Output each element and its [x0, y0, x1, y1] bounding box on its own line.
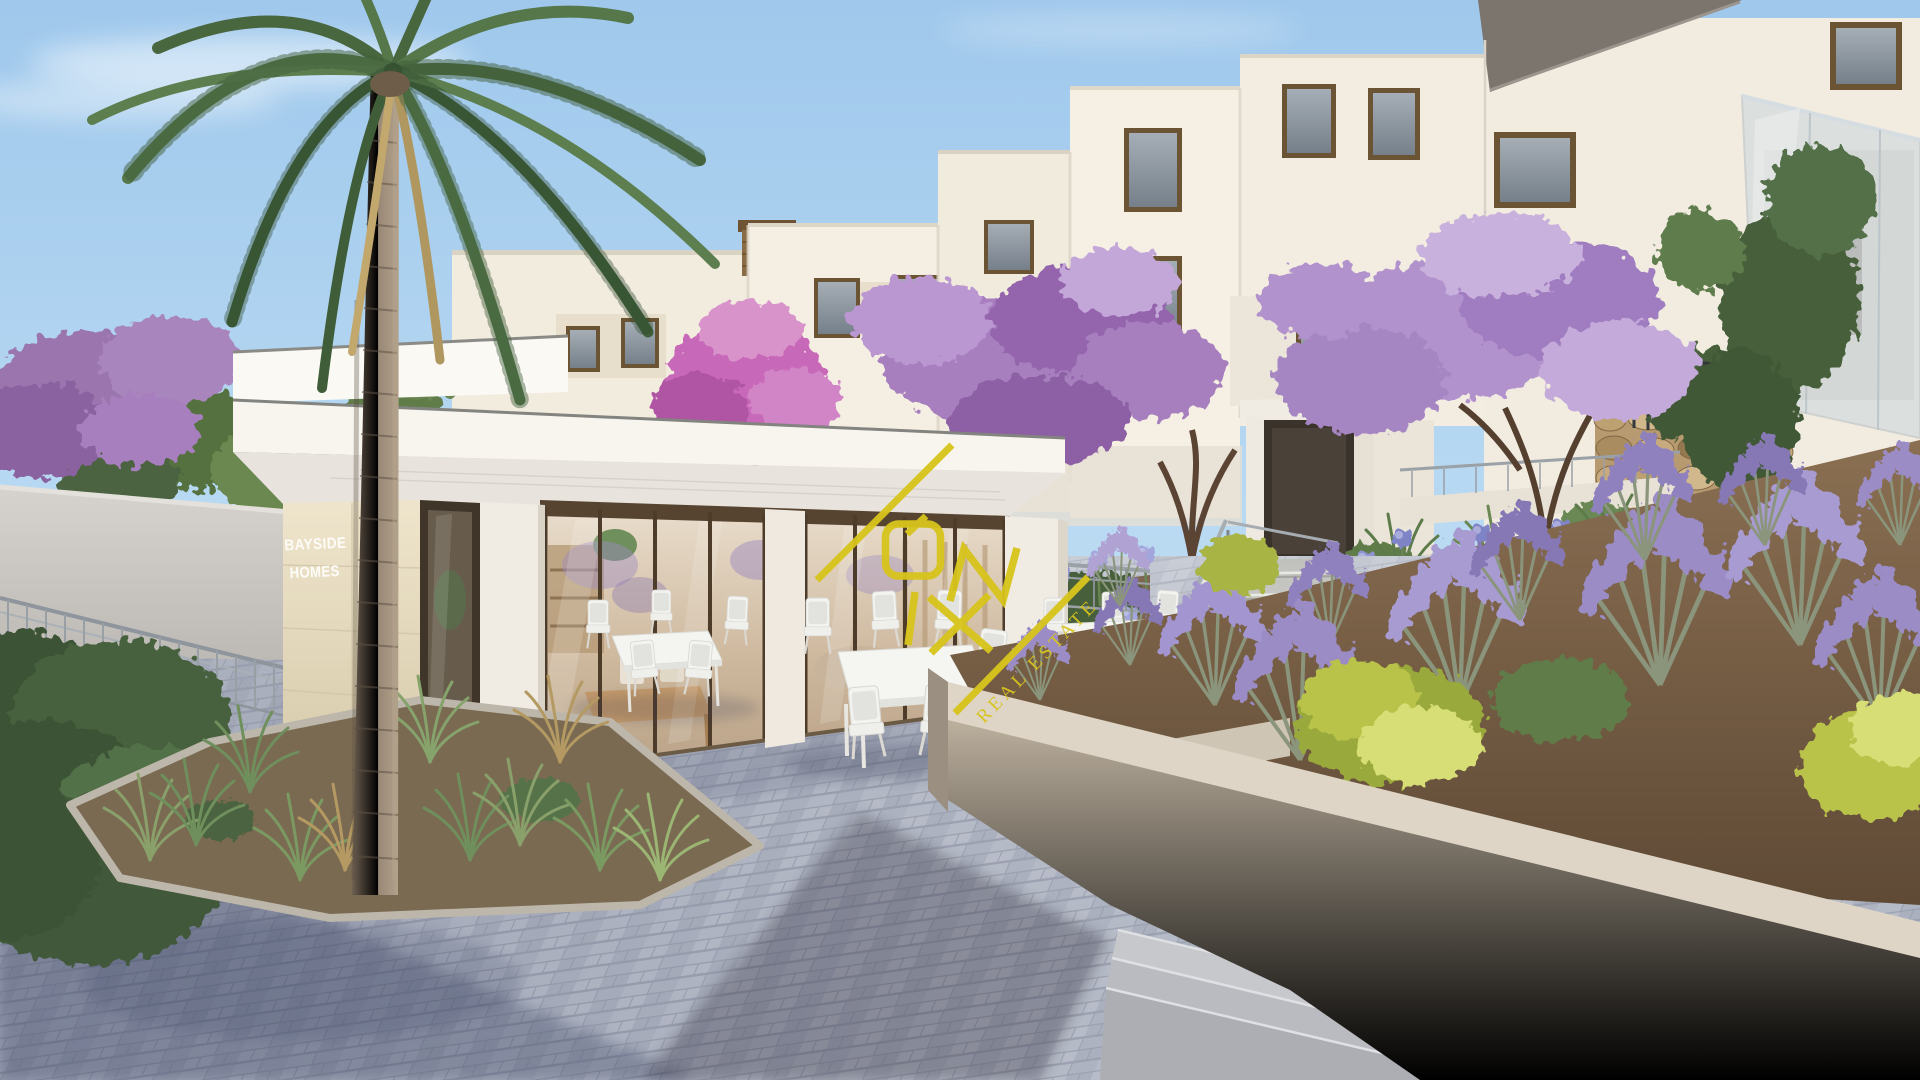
- sign-line1: BAYSIDE: [284, 535, 347, 555]
- sign-line2: HOMES: [289, 563, 340, 582]
- courtyard-render: BAYSIDE HOMES: [0, 0, 1920, 1080]
- window: [984, 220, 1034, 274]
- render-canvas: BAYSIDE HOMES: [0, 0, 1920, 1080]
